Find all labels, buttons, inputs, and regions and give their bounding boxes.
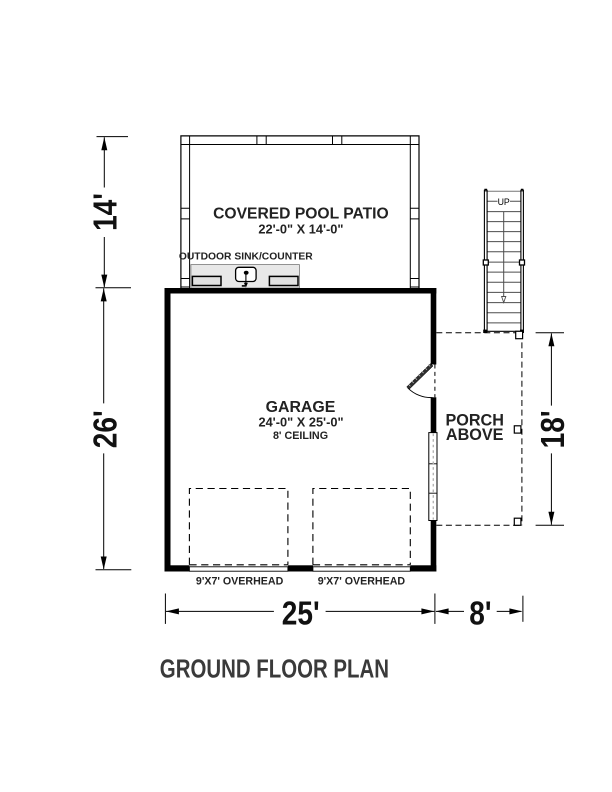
svg-text:UP: UP [498,197,510,207]
svg-text:9'X7' OVERHEAD: 9'X7' OVERHEAD [196,576,284,588]
svg-text:22'-0" X 14'-0": 22'-0" X 14'-0" [258,222,343,237]
svg-text:8': 8' [469,595,491,632]
svg-text:GROUND FLOOR PLAN: GROUND FLOOR PLAN [160,654,389,683]
svg-text:ABOVE: ABOVE [446,426,504,444]
svg-text:26': 26' [87,410,124,448]
svg-text:18': 18' [535,410,572,448]
svg-text:8' CEILING: 8' CEILING [273,430,328,442]
svg-text:14': 14' [87,193,124,231]
svg-text:25': 25' [282,595,320,632]
svg-text:24'-0" X 25'-0": 24'-0" X 25'-0" [258,414,343,429]
svg-text:OUTDOOR SINK/COUNTER: OUTDOOR SINK/COUNTER [179,251,313,262]
svg-text:9'X7' OVERHEAD: 9'X7' OVERHEAD [318,576,406,588]
svg-text:COVERED POOL PATIO: COVERED POOL PATIO [213,205,389,222]
